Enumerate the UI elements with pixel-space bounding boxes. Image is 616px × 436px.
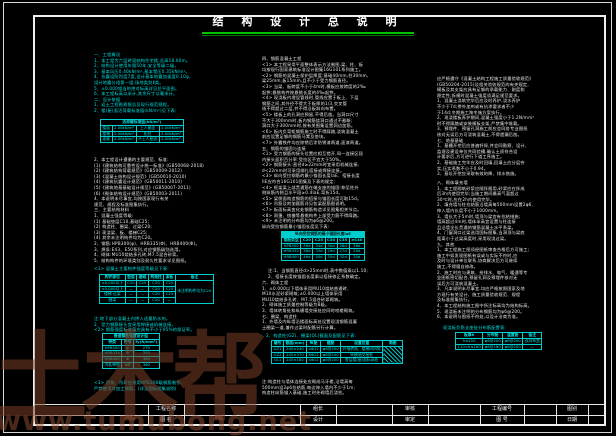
left-col-overview-notes: 一、工程概况1、本工程为六层砖混结构住宅楼,总高18.60m。2、结构设计使用年… [94, 52, 236, 114]
titleblock-field-label: 审定 [392, 415, 428, 425]
titleblock-field-label: 图别 [556, 404, 588, 414]
title-underline [202, 32, 414, 34]
table-cell: φ6@180 [483, 344, 503, 350]
title-underline-2 [202, 35, 414, 36]
table-cell: φ8@200 [503, 344, 523, 350]
text-line: 2、楼(屋)面活荷载标准值(kN/m²)见下表: [94, 108, 236, 114]
table-cell: 各层楼(屋)面标高处 [341, 358, 383, 364]
titleblock-divider [524, 404, 525, 426]
text-line: 2、构造柱(GZ)、圈梁(QL)截面及配筋见下表: [266, 333, 436, 339]
table-cell: 不上人屋面 [136, 137, 159, 143]
table-cell: 32d [337, 255, 349, 261]
text-line: 现浇板负筋支座处分布筋配置表: [443, 325, 603, 331]
mid-col-rc-notes: 四、钢筋混凝土工程<1> 本工程采用平面整体表示方法制图,梁、柱、板 均按现行国… [262, 56, 436, 229]
text-line: 构造柱纵筋锚入基础,施工时先砌墙后浇柱。 [262, 390, 436, 396]
slab-distribution-table: 板厚h分布筋温度筋备注h≤110φ6@200φ6@200双向布置110<h≤16… [455, 332, 542, 350]
live-load-table-wrap: 活荷载标准值(kN/m²)楼面2.00kN/m²上人屋面2.00kN/m²楼梯2… [100, 119, 184, 143]
titleblock-divider [588, 404, 589, 426]
gz-table-wrap: 编号截面(mm)纵筋箍筋设置位置简图GZ1240×2404Φ12φ6@200外墙… [271, 340, 403, 364]
mid-col-gz-footnotes: 注:构造柱与墙体连接处应砌成马牙槎,沿墙高每500mm设2φ6拉结筋,每边伸入墙… [262, 379, 436, 396]
table-row: 走廊2.00kN/m²不上人屋面2.00kN/m² [101, 137, 184, 143]
right-col-misc-notes: 八、砌体填充墙1、本工程砌筑砂浆应随拌随用,砂浆应在拌成 后3h内使用完毕;当施… [437, 180, 605, 320]
text-line: 3、基坑开挖应采取有效的降、排水措施。 [437, 171, 605, 177]
titleblock-field-label: 图 号 [480, 415, 524, 425]
table-cell: 未注明构件均为C20 [175, 280, 213, 303]
table-cell: 4Φ12 [306, 358, 320, 364]
table-cell: 2.00kN/m² [112, 137, 136, 143]
table-cell: HRB400 [282, 255, 301, 261]
concrete-grade-table-wrap: 构件部位垫层基础构造柱梁板备注±0.000以下C10C25C20C25未注明构件… [99, 274, 214, 304]
table-cell: 110<h≤160 [456, 344, 483, 350]
table-cell: QL1 [272, 358, 284, 364]
right-col-slab-intro: 现浇板负筋支座处分布筋配置表: [443, 325, 603, 331]
table-cell: 圈梁 [100, 298, 126, 304]
table-cell: 35d [325, 255, 337, 261]
right-col-construction-notes: 应严格遵守《混凝土结构工程施工质量验收规范》(GB50204-2015)及相关验… [437, 76, 605, 177]
table-cell: — [523, 344, 542, 350]
text-line: 6、本说明与图纸不符处,以设计洽商为准。 [437, 314, 605, 320]
anchorage-table-wrap: 纵向受拉钢筋的最小锚固长度laE钢筋类型C20C25C30C35≥C40HPB3… [281, 231, 365, 261]
table-cell: 2.00kN/m² [159, 137, 183, 143]
table-cell: 40d [313, 255, 325, 261]
table-cell: — [137, 298, 149, 304]
watermark-url: www.tumubong.net [0, 406, 312, 436]
titleblock-field-label: 日期 [556, 415, 588, 425]
titleblock-divider [336, 404, 337, 426]
table-row: HRB40046d40d35d32d30d [282, 255, 365, 261]
table-cell: 走廊 [101, 137, 113, 143]
text-line: 纵向受拉钢筋最小锚固长度见下表: [262, 224, 436, 230]
mid-col-masonry-notes: 六、砌体工程1、±0.000以下墙体采用MU10烧结普通砖、 M10水泥砂浆砌筑… [262, 280, 436, 330]
cad-sheet: 结 构 设 计 总 说 明 一、工程概况1、本工程为六层砖混结构住宅楼,总高18… [0, 0, 616, 436]
constructional-column-table: 编号截面(mm)纵筋箍筋设置位置简图GZ1240×2404Φ12φ6@200外墙… [271, 340, 403, 364]
titleblock-field-label: 审核 [392, 404, 428, 414]
slab-rebar-table-wrap: 板厚h分布筋温度筋备注h≤110φ6@200φ6@200双向布置110<h≤16… [455, 332, 542, 350]
table-cell: — [125, 298, 137, 304]
titleblock-field-label: 工程编号 [480, 404, 524, 414]
column-sketch-diagram [383, 346, 403, 363]
table-cell: φ6@200 [321, 358, 341, 364]
concrete-grade-table: 构件部位垫层基础构造柱梁板备注±0.000以下C10C25C20C25未注明构件… [99, 274, 214, 304]
anchorage-length-table: 纵向受拉钢筋的最小锚固长度laE钢筋类型C20C25C30C35≥C40HPB3… [281, 231, 365, 261]
left-col-codes-notes: 2、本工程设计遵循的主要规范、标准:(1)《建筑结构可靠性设计统一标准》(GB5… [94, 157, 246, 263]
left-col-concrete-intro: <1> 混凝土主要构件强度等级见下表: [94, 266, 246, 272]
mid-col-gz-intro: 2、构造柱(GZ)、圈梁(QL)截面及配筋见下表: [266, 333, 436, 339]
text-line: 土圈梁一道,兼作过梁时配筋另行计算。 [262, 325, 436, 331]
table-row: 110<h≤160φ6@180φ8@200— [456, 344, 542, 350]
table-cell: 30d [349, 255, 364, 261]
table-cell: C20 [148, 298, 163, 304]
text-line: 2、搭接长度按锚固长度乘以搭接修正系数确定。 [268, 274, 436, 280]
titleblock-divider [428, 404, 429, 426]
text-line: 5、结构构件的环境类别及耐久性要求详见图纸。 [94, 258, 246, 264]
table-cell: 240×180 [283, 358, 306, 364]
table-cell: — [164, 298, 176, 304]
sheet-title: 结 构 设 计 总 说 明 [196, 13, 420, 29]
table-cell: 46d [301, 255, 313, 261]
live-load-table: 活荷载标准值(kN/m²)楼面2.00kN/m²上人屋面2.00kN/m²楼梯2… [100, 119, 184, 143]
text-line: <1> 混凝土主要构件强度等级见下表: [94, 266, 246, 272]
mid-col-table-caption: 注:1、当钢筋直径d>25mm时,表中数值乘以1.10;2、搭接长度按锚固长度乘… [268, 268, 436, 279]
